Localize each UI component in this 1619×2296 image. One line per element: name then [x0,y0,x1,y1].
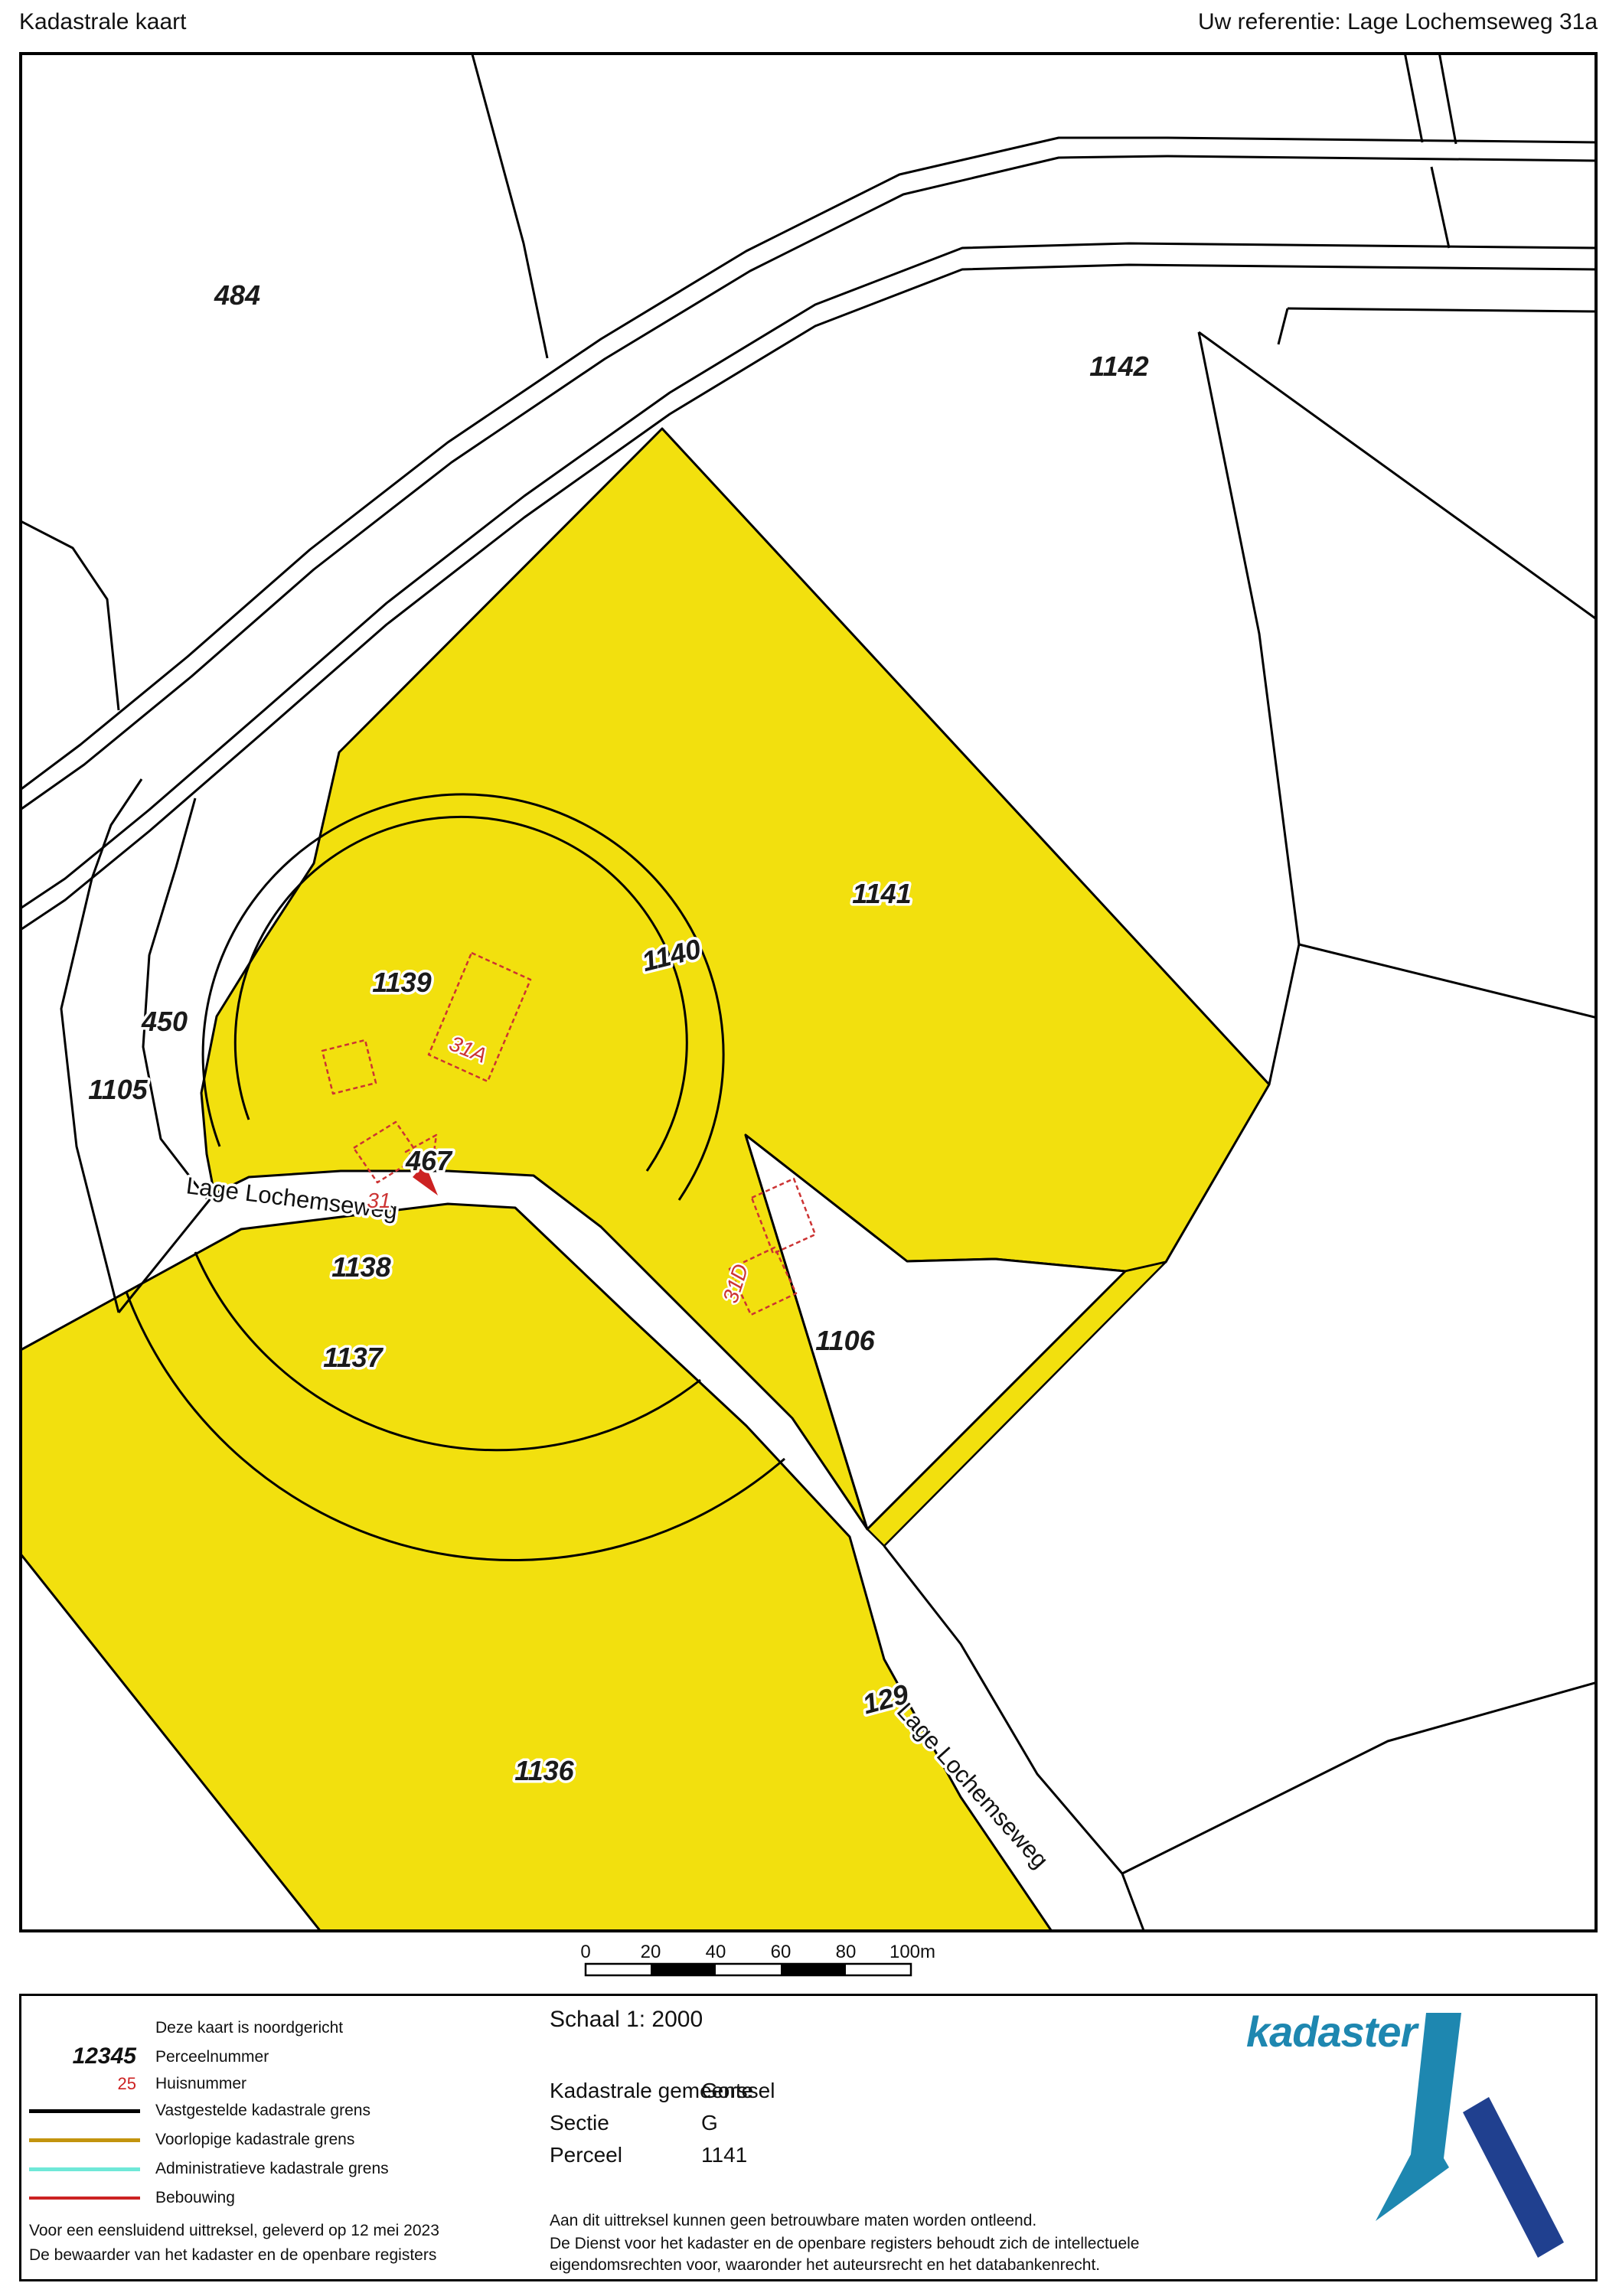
legend-line-voorlopig [29,2138,140,2142]
reference-text: Uw referentie: Lage Lochemseweg 31a [1198,9,1598,35]
scale-bar-segment-black-1 [651,1964,716,1975]
parcel-label-467: 467 [405,1145,453,1176]
scale-text: Schaal 1: 2000 [550,2007,703,2033]
scale-bar-segment-black-2 [781,1964,846,1975]
disclaimer-line-2: De Dienst voor het kadaster en de openba… [550,2235,1139,2253]
scale-tick-40: 40 [706,1942,726,1962]
scale-bar: 0 20 40 60 80 100m [566,1935,949,1988]
legend-label-bebouwing: Bebouwing [155,2189,235,2207]
info-label-perceel: Perceel [550,2143,622,2167]
kadaster-logo-icon [1365,2013,1572,2269]
map-svg: 484 1142 1141 1140 1139 450 1105 467 113… [19,52,1598,1932]
parcel-label-1136: 1136 [514,1755,574,1786]
legend-label-vastgesteld: Vastgestelde kadastrale grens [155,2102,370,2120]
legend-label-perceelnummer: Perceelnummer [155,2048,269,2066]
parcel-label-1138: 1138 [331,1251,390,1283]
scale-tick-100: 100m [889,1942,935,1962]
scale-tick-0: 0 [580,1942,590,1962]
disclaimer-line-3: eigendomsrechten voor, waaronder het aut… [550,2256,1100,2275]
info-value-perceel: 1141 [701,2143,747,2167]
legend-line-vastgesteld [29,2109,140,2113]
parcel-label-450: 450 [141,1006,188,1037]
page-title: Kadastrale kaart [19,9,186,35]
keeper-note: De bewaarder van het kadaster en de open… [29,2246,436,2265]
scale-tick-80: 80 [836,1942,857,1962]
north-note: Deze kaart is noordgericht [155,2019,343,2037]
scale-bar-frame [586,1964,911,1975]
scale-tick-60: 60 [771,1942,792,1962]
info-value-gemeente: Gorssel [701,2079,775,2103]
parcel-label-1142: 1142 [1089,351,1148,382]
legend-label-voorlopig: Voorlopige kadastrale grens [155,2131,354,2149]
parcel-label-1141: 1141 [852,878,911,909]
legend-sample-huisnummer: 25 [21,2074,136,2094]
parcel-label-1137: 1137 [323,1342,384,1373]
parcel-label-484: 484 [214,279,260,311]
parcel-label-1105: 1105 [88,1074,148,1105]
parcel-label-1106: 1106 [815,1325,875,1356]
legend-line-administratief [29,2167,140,2171]
scale-tick-20: 20 [641,1942,661,1962]
info-label-sectie: Sectie [550,2111,609,2135]
parcel-label-1139: 1139 [372,967,431,998]
house-label-31: 31 [367,1189,390,1212]
disclaimer-line-1: Aan dit uittreksel kunnen geen betrouwba… [550,2212,1036,2230]
legend-line-bebouwing [29,2197,140,2200]
delivery-note: Voor een eensluidend uittreksel, gelever… [29,2222,439,2240]
info-value-sectie: G [701,2111,718,2135]
legend-sample-perceelnummer: 12345 [21,2043,136,2069]
legend-label-administratief: Administratieve kadastrale grens [155,2160,389,2178]
cadastral-map: 484 1142 1141 1140 1139 450 1105 467 113… [19,52,1598,1932]
footer-panel: Deze kaart is noordgericht 12345 Perceel… [19,1994,1598,2281]
legend-label-huisnummer: Huisnummer [155,2075,246,2093]
kadastrale-kaart-page: { "header": { "title": "Kadastrale kaart… [0,0,1619,2296]
